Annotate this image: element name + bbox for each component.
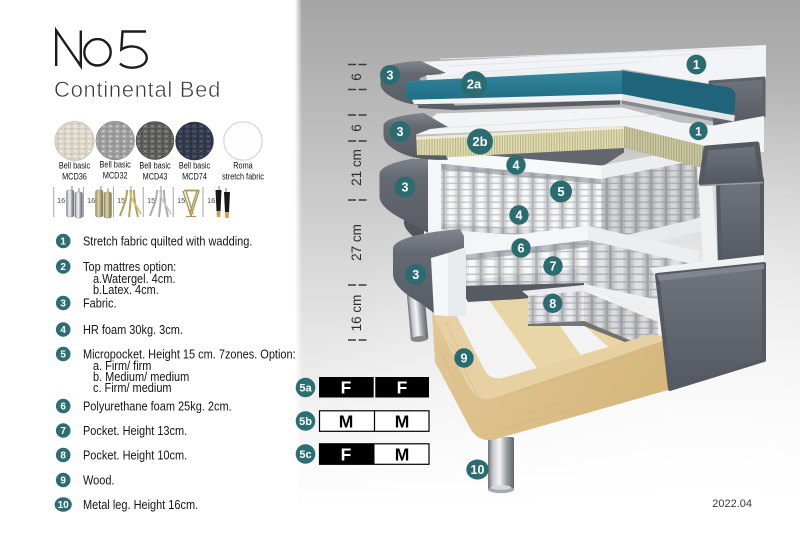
svg-text:Metal leg. Height 16cm.: Metal leg. Height 16cm.: [83, 497, 198, 512]
svg-text:MCD74: MCD74: [182, 171, 207, 182]
svg-text:1: 1: [60, 237, 66, 248]
svg-text:Bell basic: Bell basic: [100, 159, 131, 170]
svg-text:Polyurethane foam 25kg. 2cm.: Polyurethane foam 25kg. 2cm.: [83, 398, 232, 413]
svg-text:27 cm: 27 cm: [349, 224, 364, 261]
svg-text:5a: 5a: [299, 383, 312, 395]
svg-text:3: 3: [387, 69, 394, 83]
svg-text:8: 8: [549, 297, 556, 311]
svg-text:16: 16: [87, 196, 95, 205]
svg-text:2: 2: [60, 262, 66, 273]
svg-text:Pocket. Height 13cm.: Pocket. Height 13cm.: [83, 423, 187, 438]
svg-text:7: 7: [60, 426, 66, 437]
svg-text:c. Firm/ medium: c. Firm/ medium: [93, 380, 172, 395]
svg-text:4: 4: [516, 209, 523, 223]
svg-text:6: 6: [60, 402, 66, 413]
svg-text:6: 6: [349, 124, 364, 132]
svg-text:9: 9: [461, 352, 468, 366]
svg-text:5: 5: [60, 350, 66, 361]
svg-text:Pocket. Height 10cm.: Pocket. Height 10cm.: [83, 447, 187, 462]
svg-text:1: 1: [693, 58, 700, 72]
svg-text:Continental Bed: Continental Bed: [54, 77, 221, 102]
svg-text:6: 6: [349, 73, 364, 81]
svg-text:1: 1: [695, 124, 702, 138]
svg-text:HR foam 30kg. 3cm.: HR foam 30kg. 3cm.: [83, 322, 183, 337]
svg-text:2022.04: 2022.04: [712, 498, 752, 510]
svg-text:8: 8: [60, 451, 66, 462]
svg-text:3: 3: [412, 268, 419, 282]
svg-text:3: 3: [60, 299, 66, 310]
svg-text:16: 16: [207, 196, 215, 205]
svg-text:16: 16: [57, 196, 65, 205]
svg-text:5c: 5c: [299, 449, 311, 461]
svg-text:Bell basic: Bell basic: [179, 160, 210, 171]
svg-text:F: F: [341, 378, 352, 398]
svg-text:F: F: [341, 444, 352, 464]
svg-text:4: 4: [60, 325, 66, 336]
svg-text:Roma: Roma: [233, 160, 253, 171]
svg-text:2b: 2b: [472, 134, 487, 149]
svg-text:Bell basic: Bell basic: [139, 160, 170, 171]
svg-text:10: 10: [471, 463, 485, 477]
svg-text:16 cm: 16 cm: [349, 295, 364, 332]
svg-text:stretch fabric: stretch fabric: [222, 171, 264, 182]
svg-text:10: 10: [58, 500, 70, 511]
svg-text:M: M: [395, 444, 410, 464]
svg-text:M: M: [339, 411, 354, 431]
svg-text:3: 3: [402, 181, 409, 195]
svg-text:2a: 2a: [467, 77, 482, 92]
svg-text:9: 9: [60, 476, 66, 487]
svg-text:5b: 5b: [299, 416, 312, 428]
svg-text:Wood.: Wood.: [83, 472, 114, 487]
svg-text:MCD43: MCD43: [143, 171, 168, 182]
svg-text:F: F: [397, 378, 408, 398]
svg-text:3: 3: [397, 125, 404, 139]
svg-text:Bell basic: Bell basic: [59, 160, 90, 171]
svg-text:Stretch fabric quilted with wa: Stretch fabric quilted with wadding.: [83, 233, 252, 248]
svg-text:MCD36: MCD36: [62, 171, 87, 182]
svg-text:7: 7: [550, 260, 557, 274]
svg-text:4: 4: [513, 159, 520, 173]
svg-text:M: M: [395, 411, 410, 431]
svg-text:15: 15: [177, 196, 185, 205]
svg-text:MCD32: MCD32: [103, 170, 128, 181]
svg-text:Fabric.: Fabric.: [83, 295, 117, 310]
svg-text:6: 6: [518, 242, 525, 256]
svg-text:5: 5: [557, 184, 564, 199]
svg-text:21 cm: 21 cm: [349, 149, 364, 186]
